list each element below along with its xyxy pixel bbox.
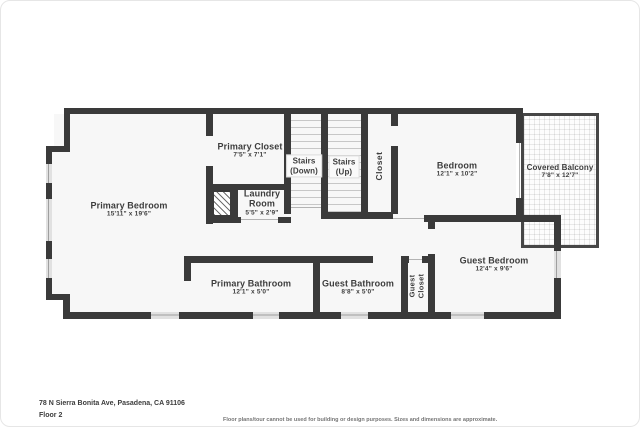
slider-door-line bbox=[519, 143, 520, 198]
wall bbox=[401, 256, 409, 263]
room-label-guest-bedroom: Guest Bedroom 12'4" x 9'6" bbox=[460, 255, 529, 274]
room-name: Closet bbox=[374, 152, 384, 181]
exterior-patch bbox=[46, 300, 63, 312]
room-dims: 8'8" x 5'0" bbox=[322, 289, 394, 298]
wall bbox=[206, 166, 213, 224]
address-text: 78 N Sierra Bonita Ave, Pasadena, CA 911… bbox=[39, 400, 185, 407]
wall bbox=[516, 198, 523, 215]
wall bbox=[428, 216, 435, 229]
door-opening-line bbox=[241, 219, 278, 220]
room-label-covered-balcony: Covered Balcony 7'8" x 12'7" bbox=[527, 163, 594, 181]
room-label-primary-closet: Primary Closet 7'5" x 7'1" bbox=[218, 141, 283, 160]
wall bbox=[206, 217, 241, 223]
wall bbox=[424, 215, 561, 222]
room-name: Guest Bedroom bbox=[460, 255, 529, 265]
door-opening-line bbox=[409, 259, 422, 260]
window bbox=[46, 259, 52, 278]
room-label-stairs-up: Stairs (Up) bbox=[329, 155, 360, 178]
room-name: Guest Bathroom bbox=[322, 278, 394, 288]
room-name-line: Guest bbox=[408, 274, 417, 299]
room-dims: 7'8" x 12'7" bbox=[527, 172, 594, 181]
wall bbox=[428, 254, 435, 312]
room-dims: 15'11" x 19'6" bbox=[90, 211, 167, 220]
wall bbox=[321, 212, 393, 219]
wall bbox=[278, 217, 291, 223]
room-dims: 12'1" x 5'0" bbox=[211, 289, 291, 298]
floor-plan-page: Primary Bedroom 15'11" x 19'6" Primary C… bbox=[0, 0, 640, 427]
room-label-stairs-down: Stairs (Down) bbox=[286, 154, 322, 177]
room-dims: 12'1" x 10'2" bbox=[437, 171, 478, 180]
room-label-guest-bathroom: Guest Bathroom 8'8" x 5'0" bbox=[322, 278, 394, 297]
room-name: Primary Closet bbox=[218, 141, 283, 151]
wall bbox=[206, 108, 213, 136]
wall bbox=[391, 108, 398, 126]
room-label-primary-bedroom: Primary Bedroom 15'11" x 19'6" bbox=[90, 200, 167, 219]
room-name: Covered Balcony bbox=[527, 163, 594, 172]
room-label-bedroom: Bedroom 12'1" x 10'2" bbox=[437, 160, 478, 179]
wall bbox=[313, 263, 320, 312]
wall bbox=[64, 108, 523, 114]
room-name: Bedroom bbox=[437, 160, 478, 170]
wall bbox=[184, 263, 191, 281]
wall bbox=[361, 108, 368, 214]
window bbox=[151, 312, 179, 319]
stairs-label-line: Stairs bbox=[290, 156, 318, 166]
window bbox=[554, 251, 561, 278]
room-label-closet: Closet bbox=[374, 152, 384, 181]
room-dims: 7'5" x 7'1" bbox=[218, 152, 283, 161]
stairs-label-line: (Down) bbox=[290, 166, 318, 176]
window bbox=[341, 312, 368, 319]
room-dims: 12'4" x 9'6" bbox=[460, 266, 529, 275]
wall bbox=[516, 108, 523, 143]
window bbox=[46, 164, 52, 183]
window bbox=[451, 312, 484, 319]
stairs-label-line: Stairs bbox=[333, 157, 356, 167]
stairs-label-line: (Up) bbox=[333, 167, 356, 177]
room-name: Laundry Room bbox=[235, 188, 289, 209]
room-name: Primary Bathroom bbox=[211, 278, 291, 288]
window bbox=[46, 199, 52, 241]
room-label-primary-bathroom: Primary Bathroom 12'1" x 5'0" bbox=[211, 278, 291, 297]
door-opening-line bbox=[393, 218, 424, 219]
disclaimer-text: Floor plans/tour cannot be used for buil… bbox=[223, 417, 497, 423]
window bbox=[253, 312, 279, 319]
room-dims: 5'5" x 2'9" bbox=[235, 209, 289, 218]
room-label-guest-closet: Guest Closet bbox=[408, 274, 427, 299]
wall bbox=[184, 256, 373, 263]
floor-label: Floor 2 bbox=[39, 412, 62, 419]
room-label-laundry-room: Laundry Room 5'5" x 2'9" bbox=[235, 188, 289, 217]
wall bbox=[391, 146, 398, 214]
wall bbox=[321, 108, 328, 219]
hatched-chase bbox=[212, 190, 232, 217]
wall bbox=[63, 312, 561, 319]
room-name: Primary Bedroom bbox=[90, 200, 167, 210]
stairs-open-edge bbox=[291, 207, 321, 208]
room-name-line: Closet bbox=[417, 274, 426, 299]
